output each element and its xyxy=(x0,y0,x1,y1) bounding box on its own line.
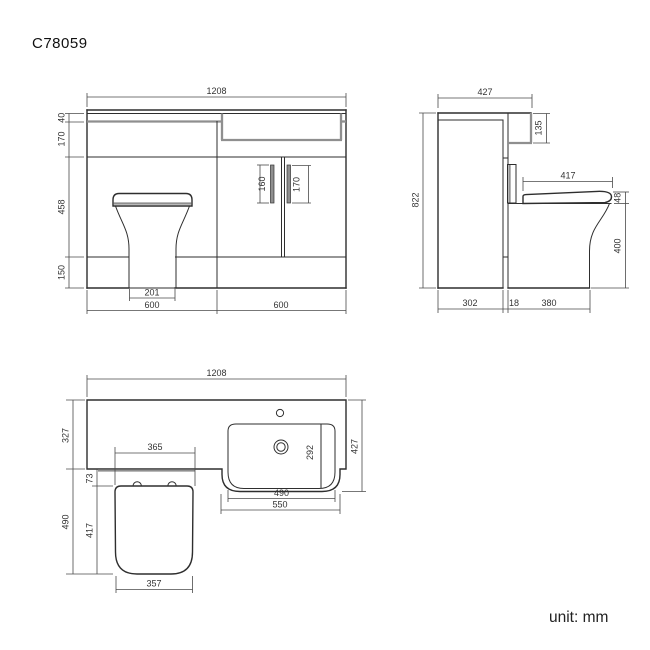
tap-hole xyxy=(276,409,283,416)
dim-side-height: 822 xyxy=(411,192,421,207)
front-countertop xyxy=(87,114,346,122)
front-dimensions: 1208 40 170 458 150 160 170 xyxy=(57,86,347,314)
dim-seat-width: 365 xyxy=(147,442,162,452)
dim-pan-projection: 380 xyxy=(541,298,556,308)
dim-seat-length: 417 xyxy=(560,171,575,181)
drawing-sheet: 1208 40 170 458 150 160 170 xyxy=(0,0,650,650)
dim-counter-depth: 327 xyxy=(61,428,71,443)
dim-right-module-width: 600 xyxy=(273,300,288,310)
dim-cabinet-depth: 302 xyxy=(462,298,477,308)
dim-plan-pan-projection: 490 xyxy=(61,514,71,529)
plan-dimensions: 1208 327 490 73 417 365 357 xyxy=(61,368,367,593)
dim-seat-front-width: 357 xyxy=(146,579,161,589)
dim-plan-seat-depth: 417 xyxy=(85,523,95,538)
dim-front-upper-height: 170 xyxy=(57,131,67,146)
front-elevation-view: 1208 40 170 458 150 160 170 xyxy=(57,86,347,314)
dim-front-overall-width: 1208 xyxy=(206,86,226,96)
waste-inner xyxy=(277,443,285,451)
side-door-handle xyxy=(508,165,517,204)
dim-left-handle: 160 xyxy=(257,176,267,191)
dim-plan-overall-depth: 427 xyxy=(350,439,360,454)
side-toilet xyxy=(508,191,612,288)
dim-gap: 18 xyxy=(509,298,519,308)
dim-left-module-width: 600 xyxy=(144,300,159,310)
front-basin-recess xyxy=(221,114,342,141)
dim-right-handle: 170 xyxy=(292,177,302,192)
dim-toilet-base-width: 201 xyxy=(144,288,159,298)
dim-basin-bowl-width: 490 xyxy=(274,488,289,498)
unit-label: unit: mm xyxy=(549,609,608,627)
dim-basin-bowl-depth: 292 xyxy=(305,445,315,460)
waste-outer xyxy=(274,440,288,454)
dim-front-counter-thickness: 40 xyxy=(57,113,67,123)
dim-basin-outer-width: 550 xyxy=(272,500,287,510)
side-cabinet xyxy=(438,113,531,288)
plan-view: 1208 327 490 73 417 365 357 xyxy=(61,368,367,593)
front-toilet-pan xyxy=(113,194,192,289)
dim-seat-thickness: 48 xyxy=(613,193,623,203)
right-door-handle xyxy=(287,165,291,203)
side-elevation-view: 427 822 135 417 48 400 xyxy=(411,87,630,313)
dim-plan-overall-width: 1208 xyxy=(206,368,226,378)
dim-seat-setback: 73 xyxy=(85,473,95,483)
dim-pan-height: 400 xyxy=(613,238,623,253)
dim-front-mid-height: 458 xyxy=(57,199,67,214)
dim-front-plinth-height: 150 xyxy=(57,265,67,280)
dim-basin-ledge-height: 135 xyxy=(534,120,544,135)
left-door-handle xyxy=(271,165,275,203)
plan-toilet-seat xyxy=(115,482,193,574)
plan-basin xyxy=(228,409,335,488)
side-basin-ledge xyxy=(508,113,532,143)
technical-drawing-page: C78059 xyxy=(0,0,650,650)
dim-side-depth: 427 xyxy=(477,87,492,97)
